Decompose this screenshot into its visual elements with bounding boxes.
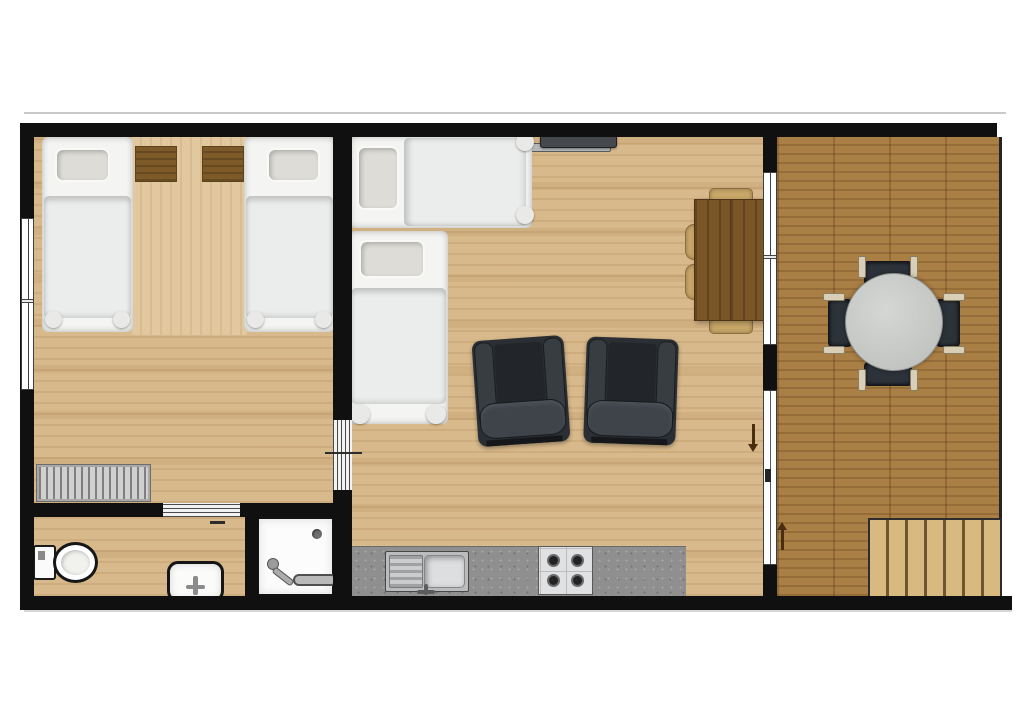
bed-foot-knob <box>315 311 332 328</box>
bed-foot-knob <box>516 206 534 224</box>
entry-arrow-down-line <box>752 424 755 444</box>
bed-foot-knob <box>247 311 264 328</box>
bed-foot-knob <box>350 404 370 424</box>
entry-arrow-up-head <box>777 522 787 530</box>
living-bed-vertical-duvet <box>351 288 446 404</box>
burner <box>571 574 584 587</box>
armchair-right <box>583 336 679 445</box>
patio-chair-armrest <box>910 256 918 278</box>
toilet-flush-button <box>38 551 45 560</box>
photo-top-border <box>24 112 1006 114</box>
living-deck-window <box>763 172 777 345</box>
bed-foot-knob <box>45 311 62 328</box>
nightstand-left <box>135 146 177 182</box>
floor-plan-canvas <box>0 0 1024 724</box>
living-bed-horizontal-duvet <box>404 138 526 226</box>
wall-deck-middle <box>763 345 777 390</box>
sliding-door-handle <box>765 469 771 482</box>
wall-top <box>20 123 997 137</box>
window-transom <box>764 255 776 259</box>
wall-deck-upper <box>763 137 777 172</box>
armchair-seat <box>479 398 567 440</box>
bedroom-doorway-tick <box>325 452 362 454</box>
bathroom-doorway <box>163 503 240 517</box>
shower-rail <box>293 574 337 586</box>
bedroom-bed-left-duvet <box>44 196 131 318</box>
stove-hob <box>538 546 593 595</box>
bathroom-tap-crossbar <box>186 585 205 589</box>
kitchen-sink-basin <box>424 555 465 588</box>
living-bed-vertical-pillow <box>359 240 425 278</box>
shower-hose <box>271 566 294 586</box>
wall-bathroom-right <box>240 503 333 517</box>
entry-arrow-up-line <box>781 530 784 550</box>
bedroom-bed-right-duvet <box>246 196 333 318</box>
wall-shower-partition <box>245 517 258 597</box>
shower-drain <box>312 529 322 539</box>
wall-bedroom-divider-lower <box>333 490 352 596</box>
toilet-bowl-inner <box>61 550 90 575</box>
dining-table <box>694 199 766 321</box>
window-mullion <box>28 219 29 389</box>
sliding-glass-door <box>763 390 777 565</box>
deck-stairs <box>868 518 1002 600</box>
bathroom-dash-mark <box>210 521 225 524</box>
kitchen-tap-crossbar <box>417 590 435 594</box>
burner <box>571 554 584 567</box>
wall-bedroom-divider-upper <box>333 137 352 420</box>
bed-foot-knob <box>113 311 130 328</box>
living-bed-horizontal-pillow <box>357 146 399 210</box>
bedroom-doorway <box>333 420 352 490</box>
shower <box>256 516 335 597</box>
wall-bathroom-left <box>34 503 163 517</box>
kitchen-sink-drainer <box>389 555 423 588</box>
bedroom-window <box>21 218 34 390</box>
patio-chair-armrest <box>823 293 845 301</box>
patio-chair-armrest <box>858 369 866 391</box>
entry-arrow-down-head <box>748 444 758 452</box>
photo-bottom-border <box>24 610 1012 612</box>
patio-table <box>845 273 943 371</box>
patio-chair-armrest <box>823 346 845 354</box>
armchair-left <box>471 335 570 447</box>
armchair-seat <box>586 399 673 438</box>
dining-table-seam <box>730 200 731 320</box>
bedroom-bed-right-pillow <box>267 148 320 182</box>
toilet-bowl <box>53 542 98 583</box>
wall-bottom <box>20 596 1012 610</box>
patio-chair-armrest <box>910 369 918 391</box>
bedroom-bed-left-pillow <box>55 148 110 182</box>
nightstand-right <box>202 146 244 182</box>
burner <box>547 554 560 567</box>
bed-foot-knob <box>426 404 446 424</box>
wall-deck-lower <box>763 565 777 596</box>
patio-chair-armrest <box>943 346 965 354</box>
patio-chair-armrest <box>858 256 866 278</box>
radiator <box>37 465 150 501</box>
patio-chair-armrest <box>943 293 965 301</box>
window-transom <box>22 299 33 303</box>
burner <box>547 574 560 587</box>
